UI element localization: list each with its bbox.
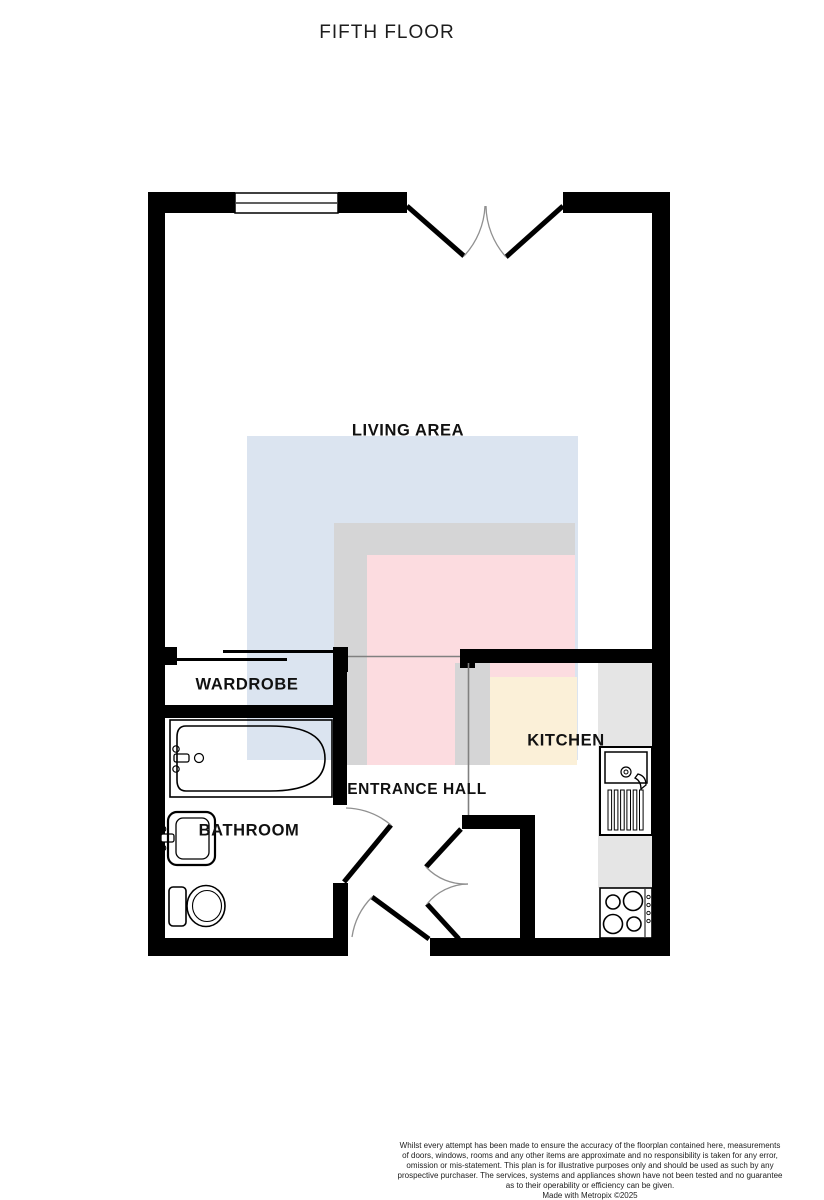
kitchen-label: KITCHEN bbox=[527, 732, 605, 751]
wall-top-a bbox=[148, 192, 235, 213]
wall-bottom-b bbox=[430, 938, 652, 956]
kitchen-top-wall bbox=[460, 649, 652, 663]
disclaimer-credit: Made with Metropix ©2025 bbox=[380, 1191, 800, 1200]
bathroom-label: BATHROOM bbox=[199, 822, 300, 841]
window-icon bbox=[235, 193, 338, 213]
disclaimer-line: of doors, windows, rooms and any other i… bbox=[380, 1151, 800, 1161]
wardrobe-label: WARDROBE bbox=[196, 676, 299, 695]
toilet-icon bbox=[169, 886, 225, 927]
kitchen-top-wall-stub bbox=[460, 649, 475, 668]
floorplan-page: FIFTH FLOOR bbox=[0, 0, 824, 1200]
zone-yellow bbox=[490, 677, 577, 765]
bathroom-wall-lower bbox=[333, 883, 348, 956]
wardrobe-bathroom-divider bbox=[148, 705, 347, 718]
wardrobe-wall-stub bbox=[165, 647, 177, 665]
entrance-hall-label: ENTRANCE HALL bbox=[347, 781, 487, 799]
front-door-icon bbox=[352, 897, 429, 939]
wall-top-b bbox=[338, 192, 407, 213]
wall-right bbox=[652, 192, 670, 956]
bathroom-door-icon bbox=[344, 808, 391, 882]
disclaimer-line: as to their operability or efficiency ca… bbox=[380, 1181, 800, 1191]
bathroom-wall-upper bbox=[333, 647, 347, 805]
french-doors-icon bbox=[407, 206, 563, 257]
disclaimer-line: omission or mis-statement. This plan is … bbox=[380, 1161, 800, 1171]
disclaimer-line: prospective purchaser. The services, sys… bbox=[380, 1171, 800, 1181]
wall-bottom-a bbox=[148, 938, 348, 956]
disclaimer-line: Whilst every attempt has been made to en… bbox=[380, 1141, 800, 1151]
kitchen-double-doors-icon bbox=[426, 829, 468, 939]
living-area-label: LIVING AREA bbox=[352, 422, 464, 441]
zone-gray-strip bbox=[455, 663, 490, 765]
floorplan-drawing bbox=[0, 0, 824, 1200]
hob-icon bbox=[600, 888, 652, 938]
kitchen-sink-icon bbox=[600, 747, 652, 835]
kitchen-lower-wall-v bbox=[520, 815, 535, 956]
disclaimer: Whilst every attempt has been made to en… bbox=[380, 1141, 800, 1200]
